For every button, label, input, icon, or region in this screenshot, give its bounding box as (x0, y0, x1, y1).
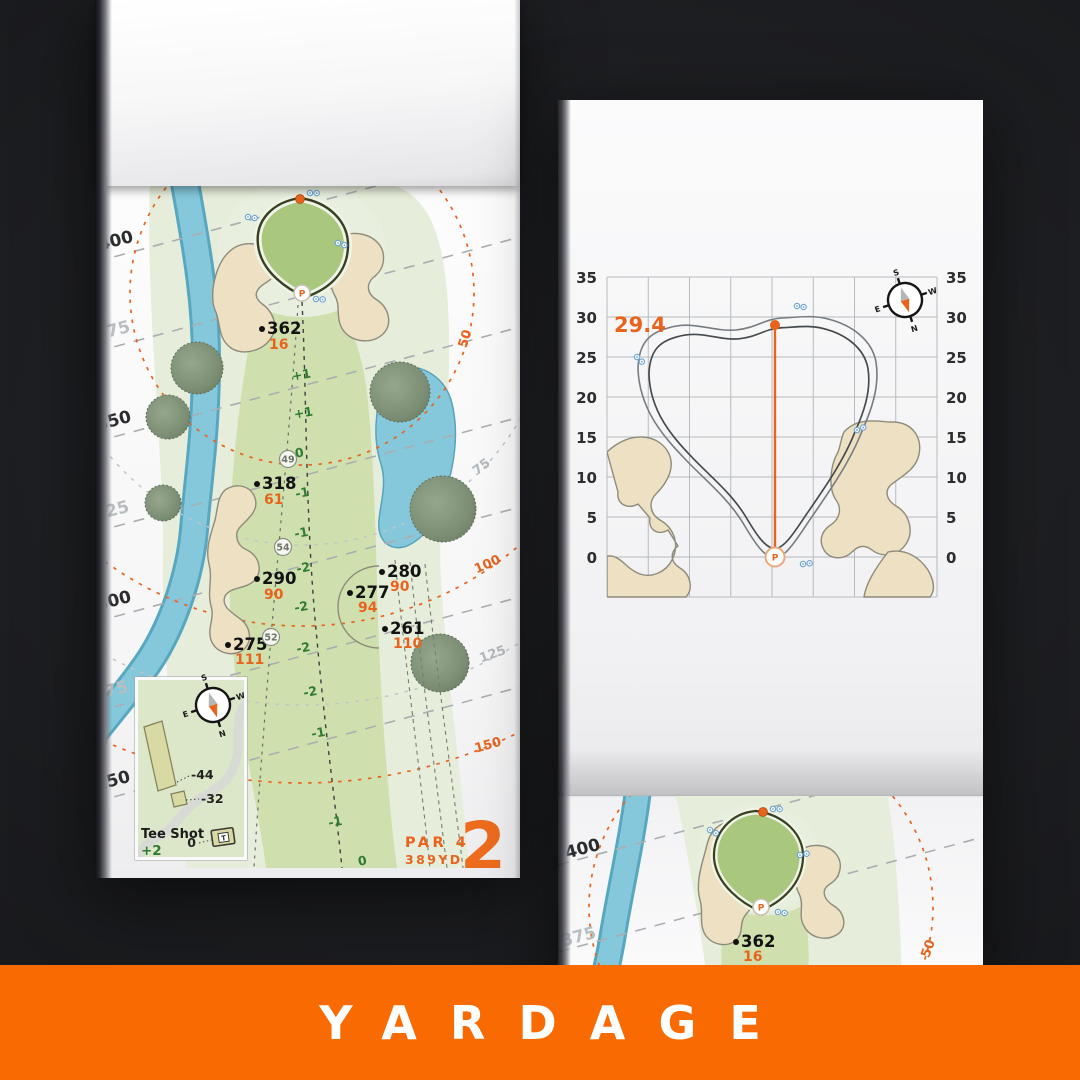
pin-marker: P (766, 548, 785, 567)
svg-text:16: 16 (269, 337, 288, 353)
flipped-page (95, 0, 520, 186)
svg-text:16: 16 (743, 949, 762, 965)
svg-text:318: 318 (262, 474, 296, 493)
tee-mark-label: -44 (191, 767, 214, 782)
pin-letter: P (299, 290, 306, 300)
green-high-point-dot (759, 808, 768, 817)
svg-text:5: 5 (587, 509, 597, 527)
right-booklet: 29.4 35 30 25 20 15 10 5 0 35 30 25 20 1… (558, 100, 983, 985)
pin-letter: P (772, 554, 779, 564)
tee-marker-icon: T (211, 828, 235, 847)
page-fold-shadow (558, 748, 983, 795)
svg-text:111: 111 (235, 652, 264, 668)
svg-text:35: 35 (576, 269, 597, 287)
pin-marker: P (294, 285, 310, 301)
pin-letter: P (758, 904, 765, 914)
svg-text:10: 10 (946, 469, 967, 487)
svg-text:-2: -2 (293, 598, 309, 615)
svg-text:25: 25 (576, 349, 597, 367)
svg-text:-1: -1 (310, 724, 326, 741)
inset-value: +2 (141, 843, 162, 859)
svg-text:0: 0 (587, 549, 597, 567)
svg-text:49: 49 (281, 455, 294, 466)
depth-value: 29.4 (614, 313, 666, 337)
svg-text:15: 15 (946, 429, 967, 447)
inset-title: Tee Shot (141, 827, 204, 842)
svg-text:-1: -1 (327, 813, 343, 830)
svg-text:110: 110 (393, 636, 422, 652)
green-high-point-dot (296, 195, 305, 204)
svg-text:290: 290 (262, 569, 296, 588)
svg-text:10: 10 (576, 469, 597, 487)
left-booklet: P 362 16 318 61 290 90 280 90 277 94 261… (95, 0, 520, 878)
pin-marker: P (753, 899, 769, 915)
svg-text:30: 30 (946, 309, 967, 327)
yards-label: 389YD (405, 852, 463, 867)
svg-text:94: 94 (358, 600, 378, 616)
svg-text:-2: -2 (302, 683, 318, 700)
svg-text:90: 90 (264, 587, 284, 603)
yardage-banner: YARDAGE (0, 965, 1080, 1080)
svg-text:15: 15 (576, 429, 597, 447)
svg-text:20: 20 (946, 389, 967, 407)
svg-text:20: 20 (576, 389, 597, 407)
tee-shot-inset: -44 -32 0 Tee Shot +2 T S N E (135, 663, 256, 862)
tee-box-small (171, 791, 187, 807)
svg-text:61: 61 (264, 492, 283, 508)
svg-text:-1: -1 (294, 484, 310, 501)
svg-text:54: 54 (276, 543, 290, 554)
tee-mark-label: -32 (201, 791, 224, 806)
banner-title: YARDAGE (319, 996, 794, 1050)
svg-text:-2: -2 (295, 559, 311, 576)
svg-text:5: 5 (946, 509, 956, 527)
svg-text:0: 0 (946, 549, 956, 567)
svg-text:30: 30 (576, 309, 597, 327)
svg-text:52: 52 (264, 633, 277, 644)
hole-number: 2 (460, 808, 506, 878)
green-detail-page: 29.4 35 30 25 20 15 10 5 0 35 30 25 20 1… (558, 100, 983, 985)
svg-text:-2: -2 (295, 639, 311, 656)
svg-text:90: 90 (390, 579, 410, 595)
svg-text:-1: -1 (293, 524, 309, 541)
svg-text:362: 362 (267, 319, 301, 338)
svg-text:25: 25 (946, 349, 967, 367)
svg-text:35: 35 (946, 269, 967, 287)
